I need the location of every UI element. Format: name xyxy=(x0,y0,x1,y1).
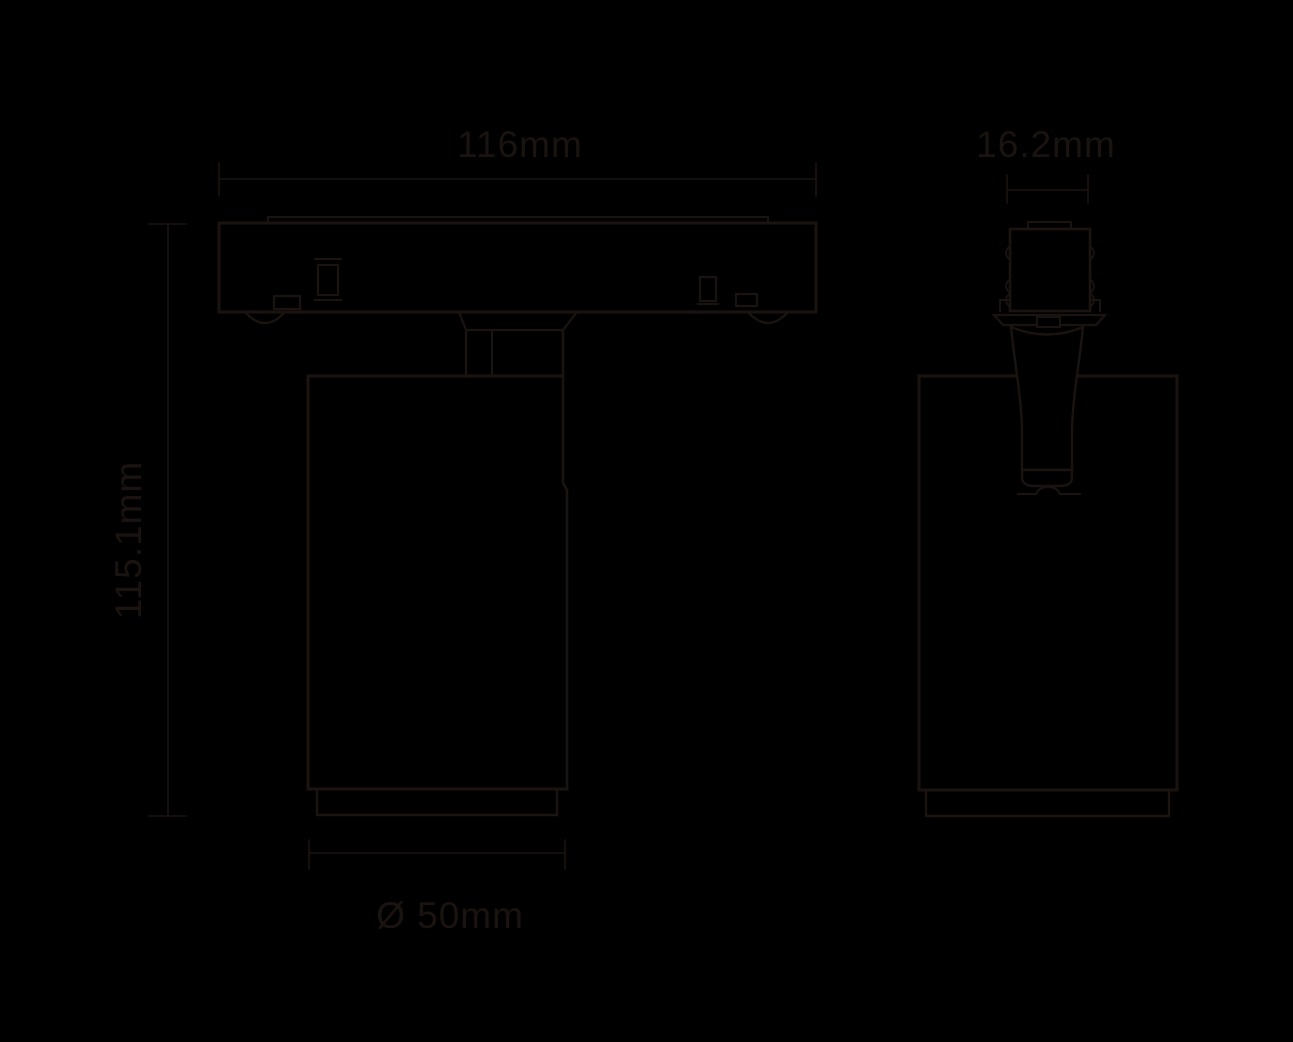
dimension-track-width-label: 116mm xyxy=(457,124,583,165)
side-stem xyxy=(1011,327,1083,470)
dimension-drawing: 116mm 16.2mm 115.1mm Ø 50mm xyxy=(0,0,1293,1042)
side-flange-notch xyxy=(1037,317,1060,327)
dimension-adapter-depth-label: 16.2mm xyxy=(976,124,1116,165)
dimension-head-diameter-label: Ø 50mm xyxy=(376,895,524,936)
dimension-overall-height-label: 115.1mm xyxy=(108,461,149,620)
side-stem-end-cap xyxy=(1022,470,1072,486)
